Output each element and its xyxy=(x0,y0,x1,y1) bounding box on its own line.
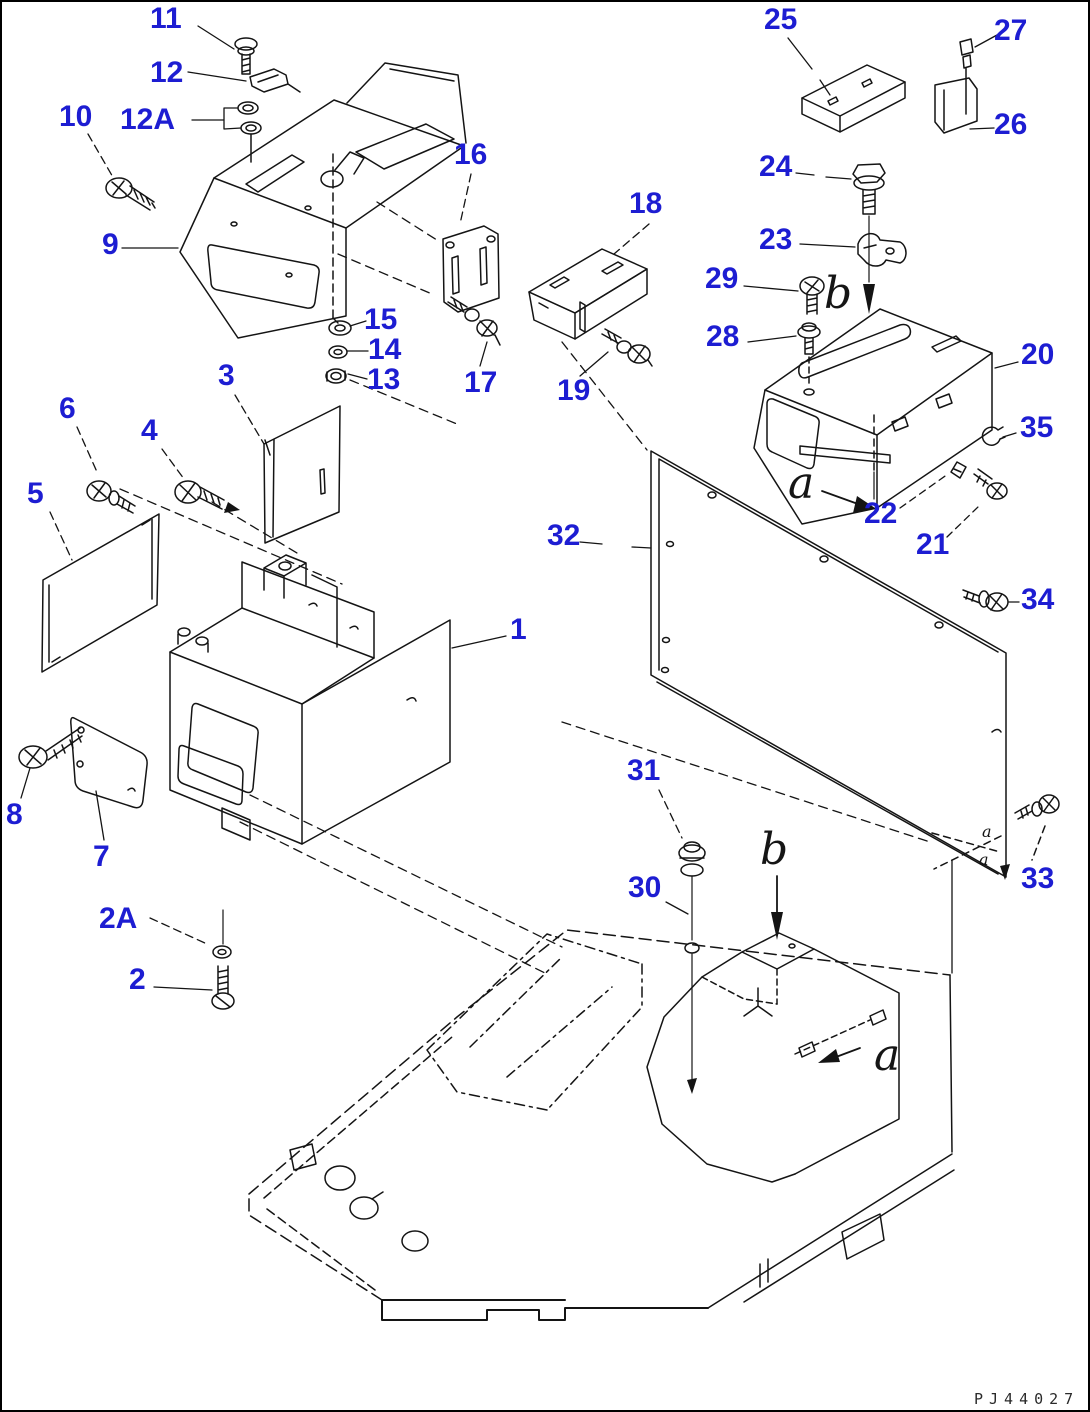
part-26-bracket xyxy=(935,78,977,133)
console-housing xyxy=(647,933,899,1182)
part-21-screw xyxy=(974,469,1007,499)
part-4-bolt xyxy=(175,481,240,513)
reference-lines-a xyxy=(932,833,1010,973)
part-label-12: 12 xyxy=(150,58,183,88)
part-label-2: 2 xyxy=(129,965,146,995)
part-17-bolt xyxy=(448,297,500,345)
part-label-1: 1 xyxy=(510,615,527,645)
part-14-washer xyxy=(329,346,347,358)
part-label-18: 18 xyxy=(629,189,662,219)
parts-diagram-page: 11121012A1691514133171918252726242329282… xyxy=(0,0,1090,1412)
part-label-6: 6 xyxy=(59,394,76,424)
part-34-bolt xyxy=(963,590,1008,611)
part-2-screw xyxy=(212,966,234,1009)
part-label-5: 5 xyxy=(27,479,44,509)
part-15-washer xyxy=(329,321,351,335)
part-3-plate xyxy=(264,406,340,543)
part-7-plate xyxy=(71,718,147,808)
part-29-bolt xyxy=(800,277,824,314)
tiny-letter-a-1: a xyxy=(982,824,992,840)
part-13-nut xyxy=(326,369,346,383)
part-label-24: 24 xyxy=(759,152,792,182)
part-label-8: 8 xyxy=(6,800,23,830)
part-label-4: 4 xyxy=(141,416,158,446)
part-label-3: 3 xyxy=(218,361,235,391)
part-label-2A: 2A xyxy=(99,904,137,934)
part-23-clamp xyxy=(858,234,906,266)
ref-letter-b-bottom: b xyxy=(760,828,788,872)
part-label-16: 16 xyxy=(454,140,487,170)
part-10-screw xyxy=(106,178,155,210)
part-25-pad xyxy=(802,65,905,132)
arrow-b-top xyxy=(863,284,875,314)
part-label-12A: 12A xyxy=(120,105,175,135)
part-16-bracket xyxy=(443,226,499,312)
part-label-26: 26 xyxy=(994,110,1027,140)
part-32-panel xyxy=(651,451,1006,877)
part-label-15: 15 xyxy=(364,305,397,335)
arrow-a-top-shaft xyxy=(822,491,858,504)
part-1-housing xyxy=(170,555,450,844)
part-31-bolt xyxy=(679,842,705,1094)
ref-letter-b-top: b xyxy=(824,272,852,316)
part-8-screw xyxy=(19,728,82,768)
part-12A-nuts xyxy=(238,102,261,162)
part-label-11: 11 xyxy=(150,4,182,34)
part-11-screw xyxy=(235,38,257,74)
part-label-10: 10 xyxy=(59,102,92,132)
part-label-28: 28 xyxy=(706,322,739,352)
part-2A-washer xyxy=(213,910,231,958)
arrow-a-bottom-shaft xyxy=(836,1048,860,1057)
part-label-19: 19 xyxy=(557,376,590,406)
part-33-bolt xyxy=(1015,795,1059,860)
part-5-plate xyxy=(42,514,159,672)
ref-letter-a-bottom: a xyxy=(874,1034,900,1078)
part-label-34: 34 xyxy=(1021,585,1054,615)
part-label-14: 14 xyxy=(368,335,401,365)
diagram-line-art xyxy=(2,2,1090,1412)
part-18-bracket xyxy=(529,249,647,339)
part-label-29: 29 xyxy=(705,264,738,294)
part-9-console-cover xyxy=(180,63,466,338)
part-label-20: 20 xyxy=(1021,340,1054,370)
part-label-13: 13 xyxy=(367,365,400,395)
part-label-21: 21 xyxy=(916,530,949,560)
part-label-30: 30 xyxy=(628,873,661,903)
tiny-letter-a-2: a xyxy=(979,852,989,868)
floor-plate xyxy=(249,930,954,1320)
part-label-25: 25 xyxy=(764,5,797,35)
part-27-pin xyxy=(960,39,973,114)
part-35-grommet xyxy=(982,427,1005,445)
part-label-32: 32 xyxy=(547,521,580,551)
ref-letter-a-top: a xyxy=(788,462,814,506)
part-label-7: 7 xyxy=(93,842,110,872)
part-label-33: 33 xyxy=(1021,864,1054,894)
part-label-35: 35 xyxy=(1020,413,1053,443)
part-22-clip xyxy=(951,462,966,478)
part-label-31: 31 xyxy=(627,756,660,786)
part-label-23: 23 xyxy=(759,225,792,255)
part-19-bolt xyxy=(602,329,652,366)
part-6-screw xyxy=(87,481,135,513)
part-label-27: 27 xyxy=(994,16,1027,46)
drawing-code: PJ44027 xyxy=(974,1390,1079,1408)
part-label-17: 17 xyxy=(464,368,497,398)
part-12-clip xyxy=(250,69,300,92)
part-label-22: 22 xyxy=(864,499,897,529)
floor-mat xyxy=(427,934,642,1110)
part-label-9: 9 xyxy=(102,230,119,260)
